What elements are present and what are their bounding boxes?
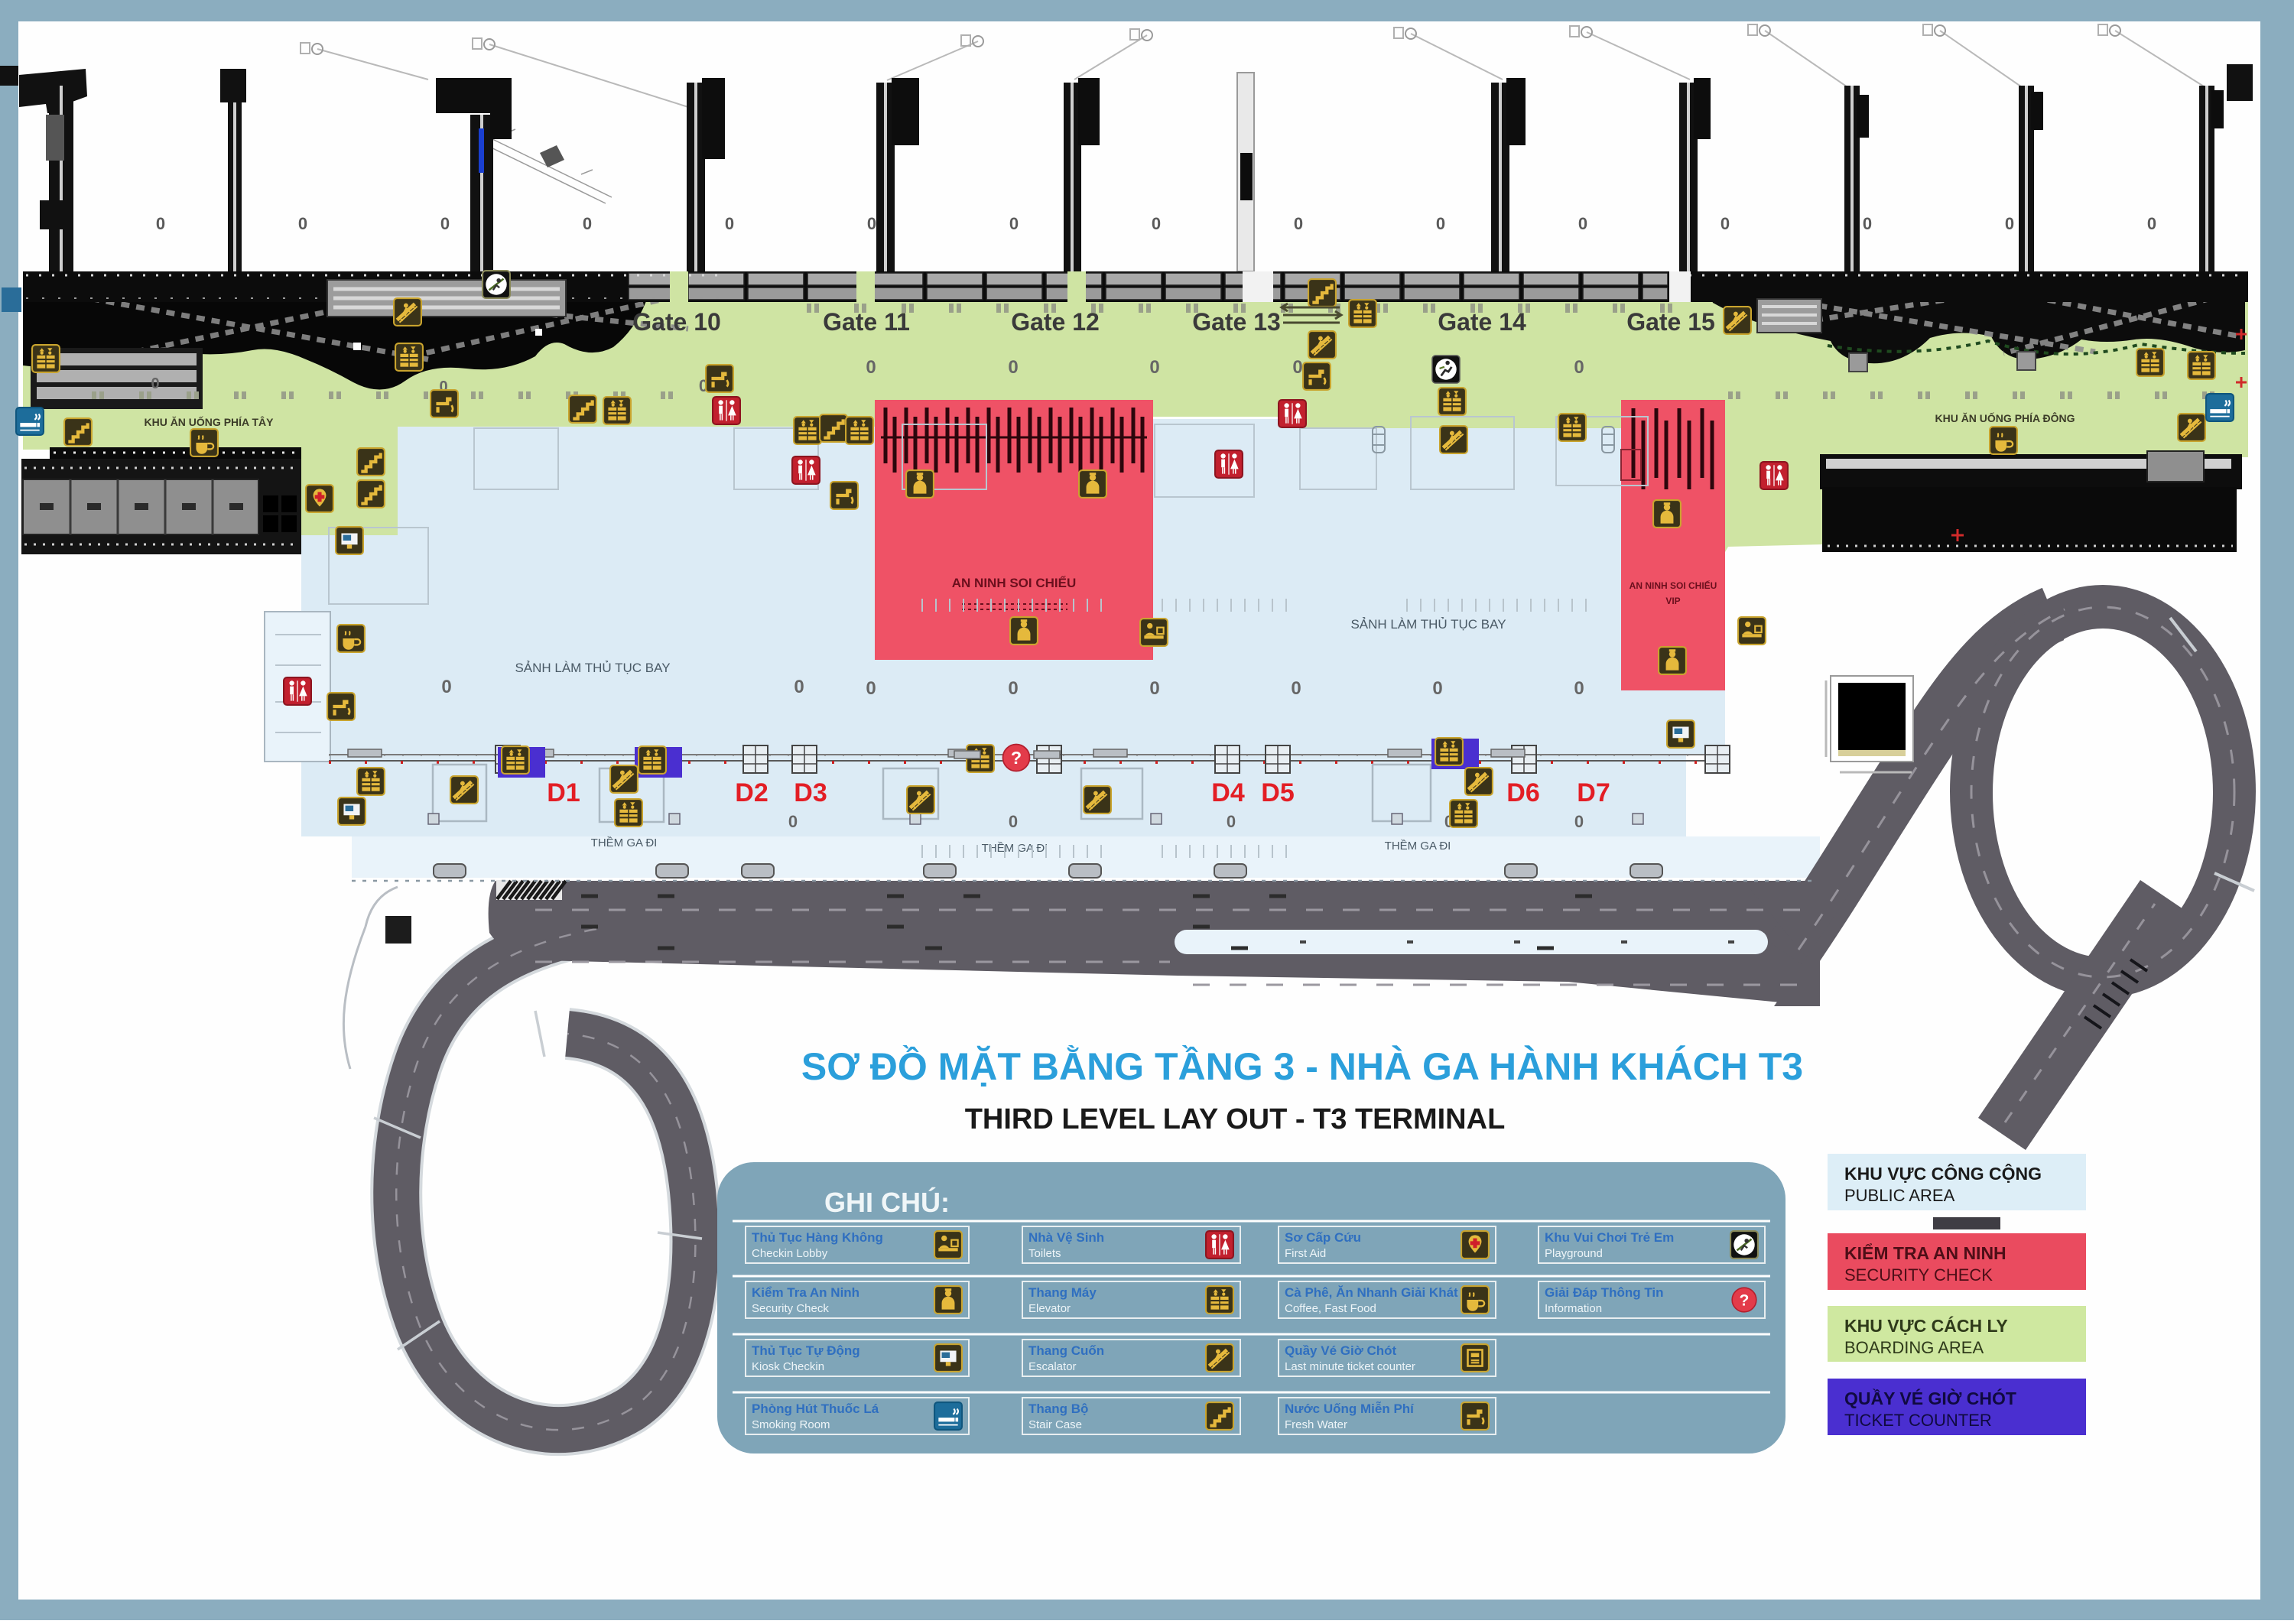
svg-text:SẢNH LÀM THỦ TỤC BAY: SẢNH LÀM THỦ TỤC BAY xyxy=(515,661,670,675)
svg-text:Stair Case: Stair Case xyxy=(1028,1418,1082,1431)
svg-text:Phòng Hút Thuốc Lá: Phòng Hút Thuốc Lá xyxy=(752,1402,879,1416)
svg-text:0: 0 xyxy=(1436,214,1445,233)
svg-text:0: 0 xyxy=(1152,214,1161,233)
svg-text:0: 0 xyxy=(298,214,307,233)
svg-text:Security Check: Security Check xyxy=(752,1302,829,1315)
svg-text:0: 0 xyxy=(156,214,165,233)
svg-text:Escalator: Escalator xyxy=(1028,1360,1077,1373)
svg-text:SẢNH LÀM THỦ TỤC BAY: SẢNH LÀM THỦ TỤC BAY xyxy=(1350,617,1506,632)
svg-text:Nhà Vệ Sinh: Nhà Vệ Sinh xyxy=(1028,1230,1104,1245)
svg-text:Sơ Cấp Cứu: Sơ Cấp Cứu xyxy=(1285,1230,1361,1245)
svg-text:BOARDING AREA: BOARDING AREA xyxy=(1844,1338,1984,1357)
svg-text:AN NINH SOI CHIẾU: AN NINH SOI CHIẾU xyxy=(1630,580,1717,591)
svg-text:D7: D7 xyxy=(1577,778,1610,807)
svg-text:0: 0 xyxy=(583,214,592,233)
svg-text:0: 0 xyxy=(794,677,804,697)
svg-text:KHU VỰC CÁCH LY: KHU VỰC CÁCH LY xyxy=(1844,1315,2008,1336)
svg-text:Information: Information xyxy=(1545,1302,1602,1315)
svg-text:0: 0 xyxy=(1292,357,1302,378)
svg-text:Smoking Room: Smoking Room xyxy=(752,1418,830,1431)
svg-text:0: 0 xyxy=(1574,812,1584,831)
svg-text:Cà Phê, Ăn Nhanh Giải Khát: Cà Phê, Ăn Nhanh Giải Khát xyxy=(1285,1285,1458,1300)
svg-text:D3: D3 xyxy=(794,778,827,807)
svg-text:THIRD LEVEL LAY OUT - T3 TERMI: THIRD LEVEL LAY OUT - T3 TERMINAL xyxy=(965,1103,1506,1135)
svg-text:D5: D5 xyxy=(1261,778,1294,807)
svg-text:Playground: Playground xyxy=(1545,1247,1603,1260)
svg-text:0: 0 xyxy=(866,678,876,699)
svg-text:THỀM GA ĐI: THỀM GA ĐI xyxy=(1385,840,1451,853)
svg-text:D1: D1 xyxy=(547,778,580,807)
svg-text:0: 0 xyxy=(441,677,451,697)
svg-text:VIP: VIP xyxy=(1665,596,1680,606)
svg-text:Kiểm Tra An Ninh: Kiểm Tra An Ninh xyxy=(752,1285,859,1300)
svg-text:D6: D6 xyxy=(1506,778,1539,807)
svg-text:0: 0 xyxy=(2147,214,2156,233)
svg-text:GHI CHÚ:: GHI CHÚ: xyxy=(824,1186,950,1218)
svg-text:KHU ĂN UỐNG PHÍA ĐÔNG: KHU ĂN UỐNG PHÍA ĐÔNG xyxy=(1935,411,2075,424)
svg-text:Last minute ticket counter: Last minute ticket counter xyxy=(1285,1360,1415,1373)
svg-text:Kiosk Checkin: Kiosk Checkin xyxy=(752,1360,824,1373)
svg-text:KIỂM TRA AN NINH: KIỂM TRA AN NINH xyxy=(1844,1242,2006,1263)
svg-text:0: 0 xyxy=(1149,357,1159,378)
svg-text:0: 0 xyxy=(1227,812,1236,831)
svg-text:0: 0 xyxy=(866,357,876,378)
svg-text:0: 0 xyxy=(1574,357,1584,378)
svg-text:Quầy Vé Giờ Chót: Quầy Vé Giờ Chót xyxy=(1285,1343,1397,1358)
svg-text:SECURITY CHECK: SECURITY CHECK xyxy=(1844,1265,1993,1285)
svg-text:Toilets: Toilets xyxy=(1028,1247,1061,1260)
svg-text:0: 0 xyxy=(1149,678,1159,699)
svg-text:Thủ Tục Tự Động: Thủ Tục Tự Động xyxy=(752,1343,860,1358)
svg-text:0: 0 xyxy=(725,214,734,233)
svg-text:First Aid: First Aid xyxy=(1285,1247,1326,1260)
svg-text:0: 0 xyxy=(1578,214,1587,233)
svg-text:KHU VỰC CÔNG CỘNG: KHU VỰC CÔNG CỘNG xyxy=(1844,1163,2042,1184)
svg-text:Gate 10: Gate 10 xyxy=(632,308,721,336)
svg-text:0: 0 xyxy=(867,214,876,233)
svg-text:Elevator: Elevator xyxy=(1028,1302,1071,1315)
svg-text:0: 0 xyxy=(151,375,159,392)
svg-text:D2: D2 xyxy=(735,778,768,807)
svg-text:Thang Bộ: Thang Bộ xyxy=(1028,1402,1088,1416)
svg-text:SƠ ĐỒ MẶT BẰNG TẦNG 3 - NHÀ GA: SƠ ĐỒ MẶT BẰNG TẦNG 3 - NHÀ GA HÀNH KHÁC… xyxy=(801,1045,1803,1088)
svg-text:0: 0 xyxy=(1432,678,1442,699)
svg-text:0: 0 xyxy=(1008,678,1018,699)
svg-text:PUBLIC AREA: PUBLIC AREA xyxy=(1844,1186,1955,1205)
svg-text:0: 0 xyxy=(440,214,450,233)
svg-text:QUẦY VÉ GIỜ CHÓT: QUẦY VÉ GIỜ CHÓT xyxy=(1844,1388,2016,1408)
svg-text:Thủ Tục Hàng Không: Thủ Tục Hàng Không xyxy=(752,1230,883,1245)
svg-text:THỀM GA ĐI: THỀM GA ĐI xyxy=(591,836,658,849)
svg-text:D4: D4 xyxy=(1211,778,1245,807)
svg-text:AN NINH SOI CHIẾU: AN NINH SOI CHIẾU xyxy=(952,576,1076,590)
svg-text:KHU ĂN UỐNG PHÍA TÂY: KHU ĂN UỐNG PHÍA TÂY xyxy=(144,415,274,428)
svg-text:0: 0 xyxy=(1291,678,1301,699)
svg-text:Fresh Water: Fresh Water xyxy=(1285,1418,1347,1431)
svg-text:Thang Máy: Thang Máy xyxy=(1028,1285,1097,1300)
svg-text:0: 0 xyxy=(1009,812,1018,831)
svg-text:Checkin Lobby: Checkin Lobby xyxy=(752,1247,828,1260)
svg-text:0: 0 xyxy=(1863,214,1872,233)
svg-text:Khu Vui Chơi Trẻ Em: Khu Vui Chơi Trẻ Em xyxy=(1545,1230,1674,1245)
svg-text:Thang Cuốn: Thang Cuốn xyxy=(1028,1343,1104,1358)
svg-text:0: 0 xyxy=(1008,357,1018,378)
svg-text:Giải Đáp Thông Tin: Giải Đáp Thông Tin xyxy=(1545,1285,1664,1300)
svg-text:0: 0 xyxy=(2005,214,2014,233)
svg-text:0: 0 xyxy=(1574,678,1584,699)
svg-text:TICKET COUNTER: TICKET COUNTER xyxy=(1844,1411,1992,1430)
svg-text:0: 0 xyxy=(1720,214,1730,233)
svg-text:0: 0 xyxy=(1009,214,1019,233)
svg-text:Nước Uống Miễn Phí: Nước Uống Miễn Phí xyxy=(1285,1402,1415,1416)
svg-text:0: 0 xyxy=(788,812,798,831)
svg-text:0: 0 xyxy=(1294,214,1303,233)
svg-text:Coffee, Fast Food: Coffee, Fast Food xyxy=(1285,1302,1376,1315)
